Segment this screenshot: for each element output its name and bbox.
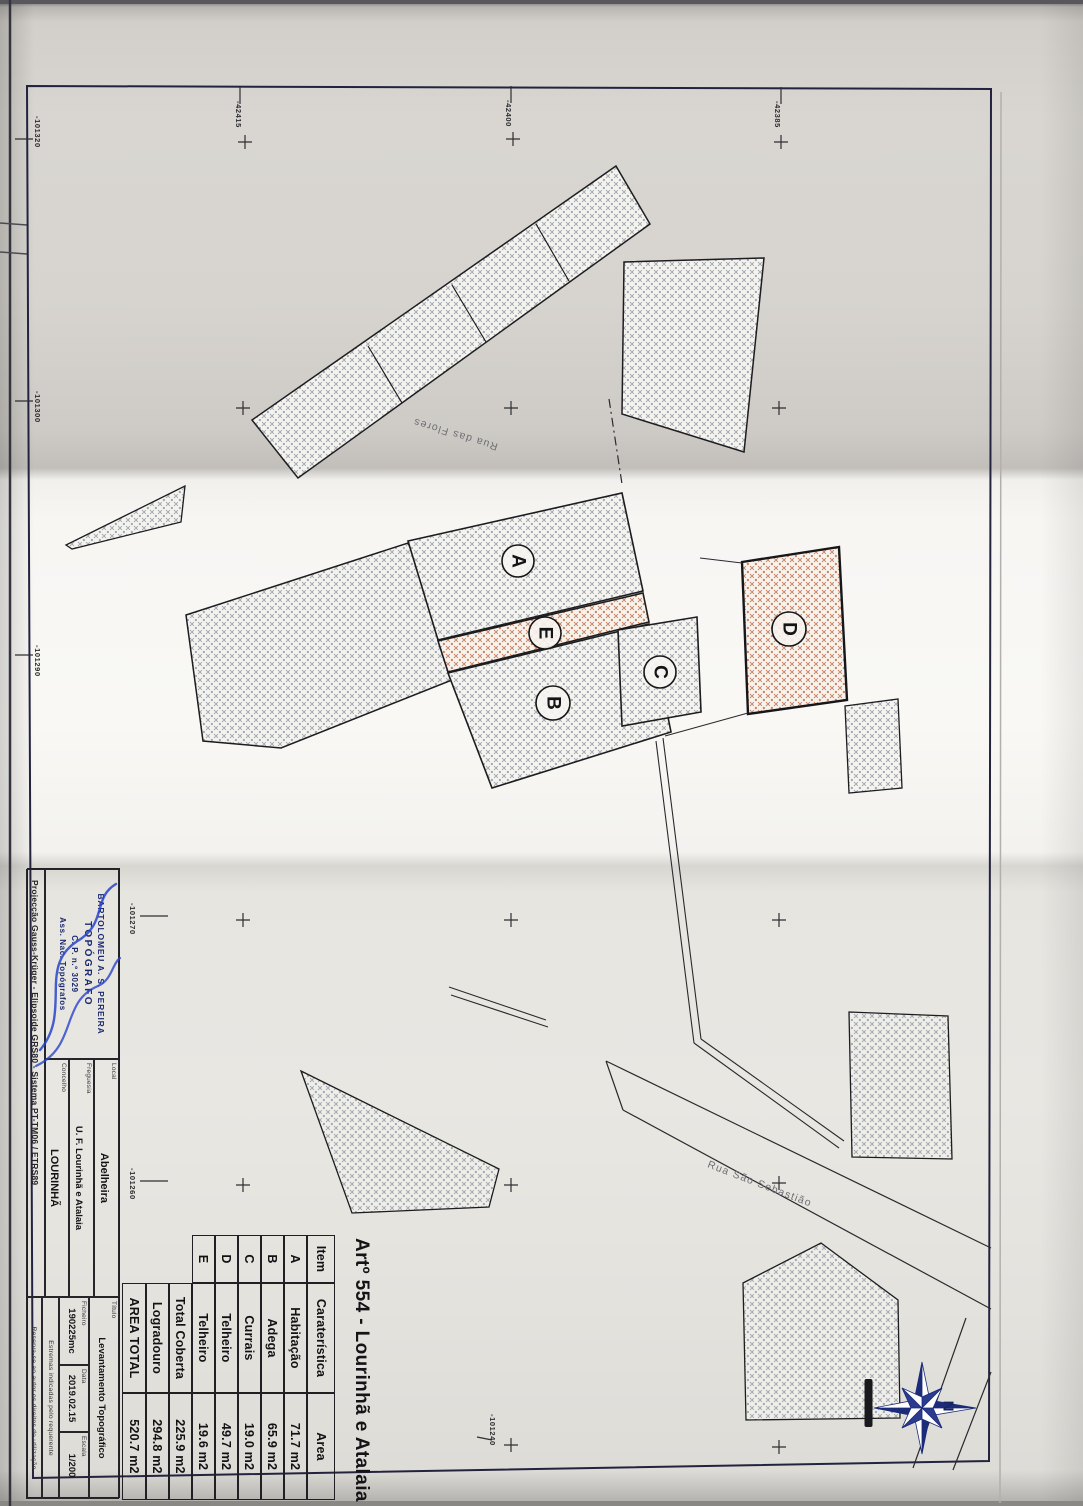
field-concelho: Concelho LOURINHÃ bbox=[45, 1059, 69, 1297]
northeast-parcel bbox=[622, 258, 764, 452]
title-block: BARTOLOMEU A. S. PEREIRA TOPÓGRAFO C. P.… bbox=[27, 868, 120, 1498]
table-summary-row: 294.8 m2 bbox=[146, 1393, 169, 1500]
surveyor-stamp: BARTOLOMEU A. S. PEREIRA TOPÓGRAFO C. P.… bbox=[45, 869, 119, 1059]
sheet-title: Artº 554 - Lourinhã e Atalaia bbox=[339, 1238, 372, 1493]
west-wing-building bbox=[186, 543, 452, 748]
table-row: 49.7 m2 bbox=[215, 1393, 238, 1500]
coord-label-top-1: -42415 bbox=[233, 101, 243, 145]
building-label-b: B bbox=[543, 696, 564, 710]
margin-marks bbox=[0, 223, 27, 254]
table-header-area: Area bbox=[307, 1393, 335, 1500]
coord-label-interior: -101240 bbox=[487, 1414, 497, 1462]
building-label-a: A bbox=[508, 554, 529, 568]
table-row: D bbox=[215, 1235, 238, 1283]
compass-tick-bar bbox=[865, 1379, 873, 1427]
scan-bottom-edge bbox=[0, 1501, 1083, 1506]
area-table: Item Caraterística Area A Habitação 71.7… bbox=[122, 1235, 335, 1500]
table-header-item: Item bbox=[307, 1235, 335, 1283]
note-line-2: Reserva-se ao autor os direitos de utili… bbox=[26, 1297, 42, 1499]
scan-top-edge bbox=[0, 0, 1083, 4]
field-local-value: Abelheira bbox=[95, 1060, 118, 1296]
table-row: Telheiro bbox=[192, 1283, 215, 1393]
coord-label-left-4: -101270 bbox=[127, 903, 137, 951]
stamp-number: C. P. n.º 3029 bbox=[70, 935, 79, 992]
table-summary-row: 225.9 m2 bbox=[169, 1393, 192, 1500]
coord-label-top-2: -42400 bbox=[503, 100, 513, 144]
field-titulo: Título Levantamento Topográfico bbox=[89, 1297, 119, 1499]
stamp-org: Ass. Nac. Topógrafos bbox=[58, 917, 67, 1011]
field-freguesia-value: U. F. Lourinhã e Atalaia bbox=[70, 1060, 93, 1296]
table-row: 71.7 m2 bbox=[284, 1393, 307, 1500]
field-concelho-label: Concelho bbox=[60, 1063, 67, 1092]
paper-right-edge bbox=[1000, 92, 1001, 1503]
table-row: B bbox=[261, 1235, 284, 1283]
field-local-label: Local bbox=[110, 1063, 117, 1080]
table-row: Telheiro bbox=[215, 1283, 238, 1393]
field-ficheiro-label: Ficheiro bbox=[80, 1301, 87, 1326]
table-header-carateristica: Caraterística bbox=[307, 1283, 335, 1393]
field-escala: Escala 1/200 bbox=[59, 1432, 89, 1499]
building-label-d: D bbox=[779, 622, 800, 636]
projection-note: Projecção Gauss-Krüger - Elipsoide GRS80… bbox=[26, 869, 45, 1297]
table-summary-row: 520.7 m2 bbox=[122, 1393, 146, 1500]
table-row: Habitação bbox=[284, 1283, 307, 1393]
field-titulo-label: Título bbox=[110, 1301, 117, 1318]
table-summary-row: Logradouro bbox=[146, 1283, 169, 1393]
small-parcel-se bbox=[845, 699, 902, 793]
table-summary-row: AREA TOTAL bbox=[122, 1283, 146, 1393]
field-data-label: Data bbox=[80, 1369, 87, 1384]
south-parcel bbox=[743, 1243, 900, 1420]
table-row: C bbox=[238, 1235, 261, 1283]
table-row: A bbox=[284, 1235, 307, 1283]
note-line-1: Estremas indicadas pelo requerente bbox=[42, 1297, 59, 1499]
table-row: E bbox=[192, 1235, 215, 1283]
compass-north-label: N bbox=[940, 1401, 957, 1412]
field-freguesia: Freguesia U. F. Lourinhã e Atalaia bbox=[69, 1059, 94, 1297]
stamp-role: TOPÓGRAFO bbox=[82, 921, 93, 1007]
scanned-survey-sheet: N A E B C D Artº 554 - Lourinhã e Atalai… bbox=[0, 0, 1083, 1506]
coord-label-left-2: -101300 bbox=[32, 391, 42, 439]
field-data: Data 2019.02.15 bbox=[59, 1365, 89, 1432]
stamp-name: BARTOLOMEU A. S. PEREIRA bbox=[96, 893, 106, 1034]
coord-label-left-3: -101290 bbox=[32, 645, 42, 693]
southeast-parcel bbox=[849, 1012, 952, 1159]
coord-label-top-3: -42385 bbox=[772, 101, 782, 145]
building-label-e: E bbox=[535, 627, 556, 640]
field-local: Local Abelheira bbox=[94, 1059, 119, 1297]
table-row: 65.9 m2 bbox=[261, 1393, 284, 1500]
coord-label-left-5: -101260 bbox=[127, 1168, 137, 1216]
coord-label-left-1: -101320 bbox=[32, 116, 42, 164]
table-row: 19.0 m2 bbox=[238, 1393, 261, 1500]
table-row: Currais bbox=[238, 1283, 261, 1393]
field-ficheiro: Ficheiro 190225mc bbox=[59, 1297, 89, 1365]
field-concelho-value: LOURINHÃ bbox=[46, 1060, 68, 1296]
field-freguesia-label: Freguesia bbox=[85, 1063, 92, 1094]
table-row: Adega bbox=[261, 1283, 284, 1393]
southwest-parcel bbox=[301, 1071, 499, 1213]
table-summary-row: Total Coberta bbox=[169, 1283, 192, 1393]
building-label-c: C bbox=[650, 665, 671, 679]
axis-dash-dot-line bbox=[609, 399, 622, 484]
table-row: 19.6 m2 bbox=[192, 1393, 215, 1500]
field-titulo-value: Levantamento Topográfico bbox=[90, 1298, 118, 1498]
west-sliver bbox=[66, 486, 185, 549]
field-escala-label: Escala bbox=[80, 1436, 87, 1457]
